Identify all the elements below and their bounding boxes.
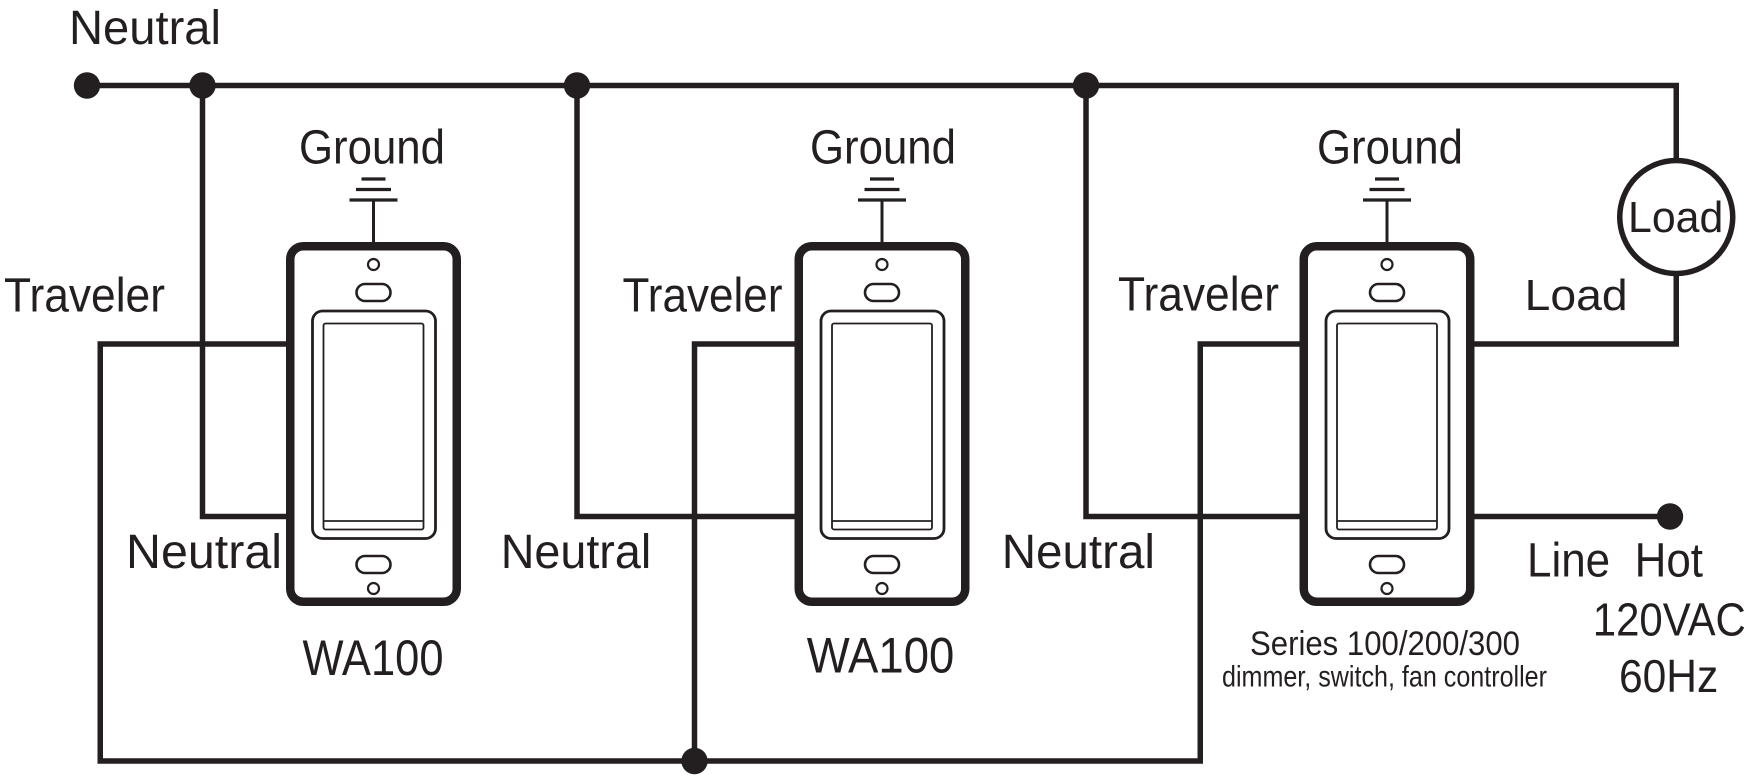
svg-text:Ground: Ground (810, 122, 956, 175)
svg-text:120VAC: 120VAC (1593, 594, 1746, 646)
svg-text:Traveler: Traveler (1118, 269, 1279, 322)
svg-text:Line Hot: Line Hot (1527, 535, 1703, 588)
svg-text:Neutral: Neutral (69, 2, 221, 55)
svg-text:Ground: Ground (299, 122, 445, 175)
svg-text:60Hz: 60Hz (1619, 650, 1718, 702)
svg-text:dimmer, switch, fan controller: dimmer, switch, fan controller (1222, 661, 1547, 694)
svg-text:Series 100/200/300: Series 100/200/300 (1250, 625, 1520, 663)
svg-text:WA100: WA100 (807, 628, 955, 684)
svg-text:WA100: WA100 (303, 630, 444, 686)
svg-text:Ground: Ground (1317, 122, 1463, 175)
svg-text:Traveler: Traveler (623, 270, 783, 323)
svg-text:Neutral: Neutral (501, 526, 652, 579)
svg-text:Neutral: Neutral (126, 526, 282, 579)
svg-text:Load: Load (1525, 271, 1628, 320)
svg-text:Neutral: Neutral (1002, 526, 1155, 579)
svg-text:Traveler: Traveler (4, 270, 165, 323)
svg-text:Load: Load (1628, 193, 1723, 242)
